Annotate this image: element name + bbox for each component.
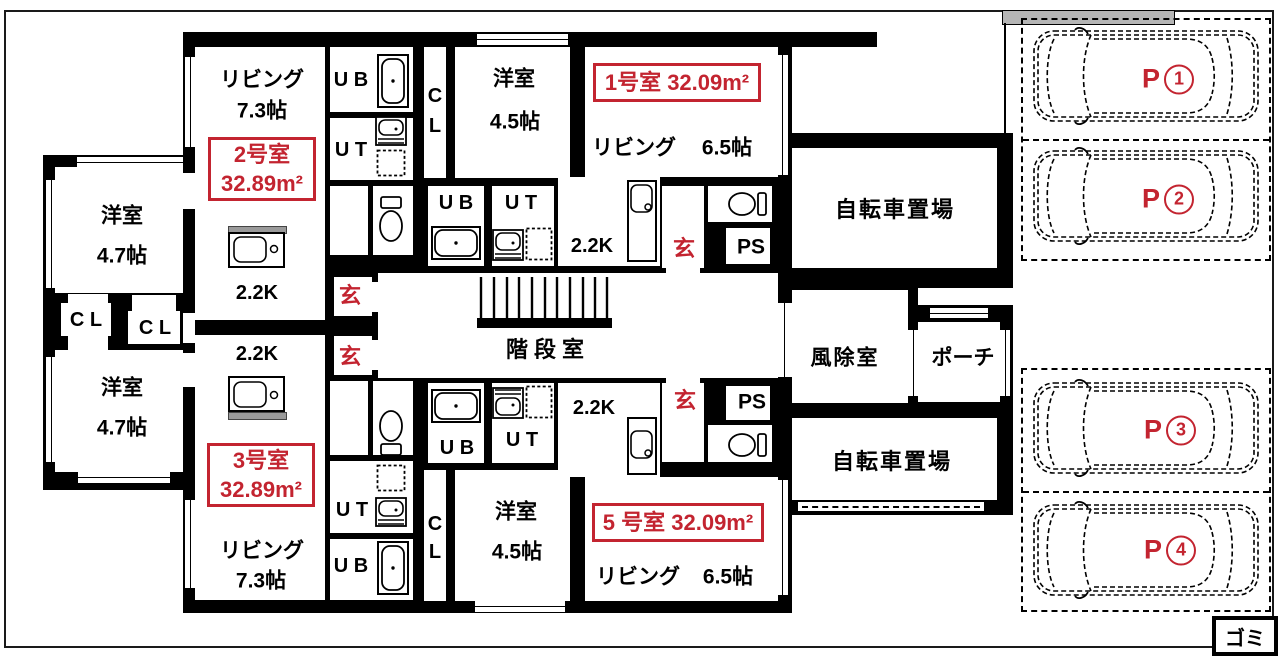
stairs-icon	[478, 277, 609, 318]
washing-machine-icon	[525, 385, 553, 419]
closet1-c: C	[428, 86, 442, 106]
entrance3-label: 玄	[339, 346, 361, 368]
door-entrance1-hall	[666, 266, 700, 274]
washbasin-icon	[492, 387, 524, 419]
window-westwing-top-west	[46, 180, 57, 288]
door-closet-right	[183, 313, 195, 343]
unit1-tag-text: 1号室 32.09m²	[596, 66, 758, 99]
room-closet-unit5	[424, 470, 446, 601]
closet5-c: C	[428, 514, 442, 534]
living2-label: リビング	[220, 70, 304, 91]
window-porch-top	[930, 308, 988, 318]
parking-stall-number: 4	[1166, 535, 1196, 565]
door-porch-entrance	[1000, 330, 1010, 396]
living3-size: 7.3帖	[236, 571, 286, 592]
opening-bicycle-bottom	[798, 502, 984, 511]
room-bedroom-west-top	[55, 167, 183, 293]
bedroom1-size: 4.5帖	[490, 112, 540, 133]
unit2-tag: 2号室 32.89m²	[208, 137, 316, 201]
stairs-landing-bar	[477, 318, 612, 328]
parking-stall-number: 2	[1164, 184, 1194, 214]
bathtub-icon	[431, 389, 481, 423]
bathtub-icon	[377, 54, 409, 108]
washbasin-icon	[375, 116, 407, 146]
parking-stall-letter: P	[1142, 184, 1160, 215]
closet-west-right-label: C L	[139, 318, 171, 338]
bedroom-west-bottom-size: 4.7帖	[97, 418, 147, 439]
bedroom-west-bottom-label: 洋室	[101, 378, 143, 399]
parking-divider	[1023, 139, 1269, 141]
exterior-notch-above-porch	[918, 288, 1013, 305]
windbreak-label: 風除室	[811, 348, 880, 369]
window-westwing-bottom	[78, 472, 170, 483]
bath2-label: U B	[334, 70, 368, 90]
entrance2-label: 玄	[339, 285, 361, 307]
unit3-tag: 3号室 32.89m²	[207, 443, 315, 507]
toilet-icon	[378, 196, 404, 244]
window-bedroom5-bottom	[475, 601, 565, 612]
kitchen-sink-icon	[627, 417, 657, 475]
toilet-icon	[726, 190, 768, 218]
living5-size: 6.5帖	[703, 567, 753, 588]
kitchen3-label: 2.2K	[236, 344, 278, 364]
bath3-label: U B	[334, 556, 368, 576]
bicycle-bottom-label: 自転車置場	[832, 451, 952, 473]
door-westwing-top-living2	[183, 173, 195, 209]
bedroom-west-top-label: 洋室	[101, 206, 143, 227]
door-closet-left-bottom	[68, 336, 108, 351]
living2-size: 7.3帖	[237, 101, 287, 122]
kitchen-sink-icon	[627, 180, 657, 262]
unit3-tag-name: 3号室	[210, 446, 312, 475]
door-windbreak-porch	[908, 330, 918, 396]
site-fence-line	[1004, 23, 1006, 133]
parking-stall-letter: P	[1142, 64, 1160, 95]
utility2-label: U T	[335, 140, 367, 160]
closet5-l: L	[429, 542, 441, 562]
washbasin-icon	[375, 497, 407, 527]
living3-label: リビング	[220, 541, 304, 562]
window-living3-west	[185, 500, 195, 588]
parking-stall-number: 3	[1166, 415, 1196, 445]
room-bedroom-unit5	[455, 470, 570, 601]
utility1-label: U T	[505, 193, 537, 213]
parking-stall-letter: P	[1144, 415, 1162, 446]
kitchen-counter-strip	[228, 412, 287, 420]
kitchen2-label: 2.2K	[236, 283, 278, 303]
door-hall-windbreak	[776, 303, 793, 377]
kitchen-sink-icon	[228, 232, 285, 268]
unit5-tag: 5 号室 32.09m²	[592, 503, 764, 542]
parking-stall-number: 1	[1164, 64, 1194, 94]
parking-divider	[1023, 491, 1269, 493]
bathtub-icon	[377, 541, 409, 595]
window-westwing-top	[77, 157, 183, 168]
bedroom5-label: 洋室	[495, 502, 537, 523]
garbage-label: ゴミ	[1225, 622, 1265, 651]
door-closet-left-top	[68, 294, 108, 304]
window-living2-west	[185, 57, 195, 147]
wall-toilet-unit3	[368, 381, 373, 455]
door-entrance5-hall	[666, 376, 700, 385]
washing-machine-icon	[525, 227, 553, 261]
stairwell-label: 階段室	[506, 339, 590, 361]
window-westwing-bottom-west	[46, 357, 57, 462]
parking-stall-4-label: P4	[1144, 535, 1196, 566]
washing-machine-icon	[376, 149, 406, 177]
pipespace1-label: PS	[737, 237, 765, 258]
entrance5-label: 玄	[674, 390, 696, 412]
unit2-tag-area: 32.89m²	[211, 169, 313, 198]
kitchen5-label: 2.2K	[573, 398, 615, 418]
window-living1-east	[777, 55, 788, 175]
bedroom-west-top-size: 4.7帖	[97, 246, 147, 267]
unit5-tag-text: 5 号室 32.09m²	[595, 506, 761, 539]
room-bedroom-west-bottom	[55, 350, 183, 472]
pipespace5-label: PS	[738, 392, 766, 413]
parking-stall-2-label: P2	[1142, 184, 1194, 215]
floor-plan: 1号室 32.09m² 2号室 32.89m² 3号室 32.89m² 5 号室…	[0, 0, 1280, 659]
porch-label: ポーチ	[932, 348, 995, 369]
washbasin-icon	[492, 229, 524, 261]
bedroom1-label: 洋室	[493, 69, 535, 90]
bicycle-top-label: 自転車置場	[835, 199, 955, 221]
door-closet-right-top	[132, 295, 176, 312]
kitchen-sink-icon	[228, 376, 285, 412]
door-entrance3-hall	[372, 340, 378, 370]
window-living5-east	[777, 480, 788, 595]
bath1-label: U B	[439, 193, 473, 213]
closet-west-left-label: C L	[70, 310, 102, 330]
toilet-icon	[378, 408, 404, 456]
living1-size: 6.5帖	[702, 138, 752, 159]
wall-toilet-unit2	[368, 186, 373, 255]
unit3-tag-area: 32.89m²	[210, 475, 312, 504]
bath5-label: U B	[440, 438, 474, 458]
living5-label: リビング	[596, 567, 680, 588]
unit2-tag-name: 2号室	[211, 140, 313, 169]
parking-stall-3-label: P3	[1144, 415, 1196, 446]
toilet-icon	[726, 431, 768, 459]
parking-stall-1-label: P1	[1142, 64, 1194, 95]
unit1-tag: 1号室 32.09m²	[593, 63, 761, 102]
bathtub-icon	[431, 226, 481, 260]
utility3-label: U T	[336, 500, 368, 520]
kitchen1-label: 2.2K	[571, 236, 613, 256]
closet1-l: L	[429, 116, 441, 136]
window-bedroom1-top	[477, 34, 568, 45]
living1-label: リビング	[592, 138, 676, 159]
washing-machine-icon	[376, 464, 406, 492]
entrance1-label: 玄	[673, 238, 695, 260]
garbage-area-box: ゴミ	[1212, 616, 1278, 656]
utility5-label: U T	[506, 430, 538, 450]
room-closet-unit1	[424, 47, 446, 178]
door-entrance2-hall	[372, 282, 378, 312]
bedroom5-size: 4.5帖	[492, 542, 542, 563]
parking-stall-letter: P	[1144, 535, 1162, 566]
door-westwing-bottom-living3	[183, 353, 195, 387]
building-topwall-stub	[792, 32, 877, 47]
